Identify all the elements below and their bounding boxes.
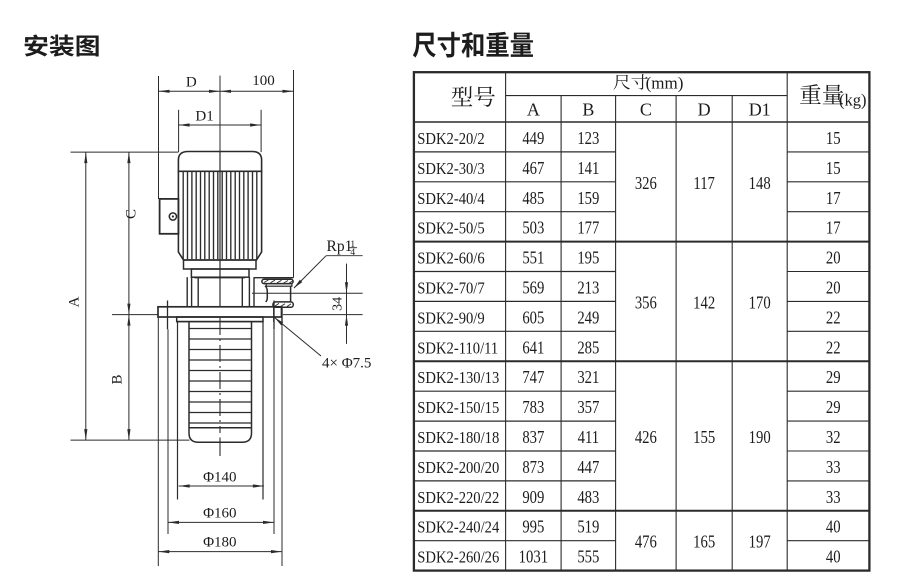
svg-text:519: 519 [577, 519, 599, 537]
svg-text:22: 22 [826, 309, 841, 327]
svg-text:A: A [67, 296, 83, 307]
svg-text:40: 40 [826, 549, 841, 567]
svg-text:Φ160: Φ160 [203, 506, 236, 522]
svg-text:503: 503 [522, 220, 544, 238]
svg-text:D: D [186, 75, 197, 91]
svg-text:SDK2-30/3: SDK2-30/3 [417, 160, 484, 178]
svg-text:SDK2-40/4: SDK2-40/4 [417, 190, 484, 208]
svg-text:197: 197 [749, 534, 771, 552]
svg-text:SDK2-110/11: SDK2-110/11 [417, 339, 498, 357]
svg-text:326: 326 [635, 175, 657, 193]
svg-text:551: 551 [522, 250, 544, 268]
svg-text:SDK2-220/22: SDK2-220/22 [417, 489, 499, 507]
svg-text:356: 356 [635, 294, 657, 312]
svg-text:SDK2-90/9: SDK2-90/9 [417, 309, 484, 327]
svg-text:783: 783 [522, 399, 544, 417]
svg-text:123: 123 [577, 130, 599, 148]
svg-text:195: 195 [577, 250, 599, 268]
svg-text:29: 29 [826, 399, 841, 417]
svg-text:569: 569 [522, 279, 544, 297]
svg-text:641: 641 [522, 339, 544, 357]
svg-text:17: 17 [826, 190, 841, 208]
svg-text:Φ140: Φ140 [203, 470, 236, 486]
svg-text:20: 20 [826, 279, 841, 297]
svg-text:32: 32 [826, 429, 841, 447]
svg-text:B: B [582, 100, 594, 120]
svg-text:483: 483 [577, 489, 599, 507]
svg-text:148: 148 [749, 175, 771, 193]
svg-text:34: 34 [331, 297, 346, 311]
svg-text:837: 837 [522, 429, 544, 447]
svg-text:C: C [640, 100, 652, 120]
svg-text:Φ180: Φ180 [203, 534, 236, 550]
svg-text:165: 165 [693, 534, 715, 552]
svg-text:Rp1: Rp1 [327, 238, 353, 255]
svg-text:SDK2-60/6: SDK2-60/6 [417, 250, 484, 268]
svg-text:D1: D1 [749, 100, 771, 120]
svg-text:A: A [527, 100, 540, 120]
svg-text:SDK2-180/18: SDK2-180/18 [417, 429, 499, 447]
svg-text:357: 357 [577, 399, 599, 417]
svg-text:SDK2-200/20: SDK2-200/20 [417, 459, 499, 477]
svg-text:555: 555 [577, 549, 599, 567]
svg-text:33: 33 [826, 489, 841, 507]
svg-text:141: 141 [577, 160, 599, 178]
svg-text:B: B [110, 374, 126, 384]
svg-text:449: 449 [522, 130, 544, 148]
svg-text:411: 411 [578, 429, 600, 447]
svg-text:(kg): (kg) [839, 91, 867, 110]
svg-text:1031: 1031 [519, 549, 548, 567]
svg-text:873: 873 [522, 459, 544, 477]
svg-text:177: 177 [577, 220, 599, 238]
svg-text:SDK2-20/2: SDK2-20/2 [417, 130, 484, 148]
svg-text:426: 426 [635, 429, 657, 447]
svg-text:29: 29 [826, 369, 841, 387]
svg-text:SDK2-70/7: SDK2-70/7 [417, 280, 484, 298]
svg-text:190: 190 [749, 429, 771, 447]
svg-text:155: 155 [693, 429, 715, 447]
svg-text:15: 15 [826, 160, 841, 178]
svg-text:4× Φ7.5: 4× Φ7.5 [322, 356, 371, 372]
svg-text:747: 747 [522, 369, 544, 387]
svg-text:249: 249 [577, 309, 599, 327]
svg-text:321: 321 [577, 369, 599, 387]
svg-text:C: C [124, 209, 140, 219]
svg-text:22: 22 [826, 339, 841, 357]
svg-text:SDK2-150/15: SDK2-150/15 [417, 399, 499, 417]
svg-text:467: 467 [522, 160, 544, 178]
svg-text:17: 17 [826, 220, 841, 238]
svg-text:20: 20 [826, 250, 841, 268]
svg-text:142: 142 [693, 294, 715, 312]
svg-text:40: 40 [826, 519, 841, 537]
svg-text:605: 605 [522, 309, 544, 327]
svg-text:15: 15 [826, 130, 841, 148]
svg-text:SDK2-260/26: SDK2-260/26 [417, 549, 499, 567]
svg-text:4: 4 [350, 248, 355, 258]
svg-text:213: 213 [577, 279, 599, 297]
svg-text:170: 170 [749, 294, 771, 312]
svg-text:SDK2-50/5: SDK2-50/5 [417, 220, 484, 238]
svg-text:447: 447 [577, 459, 599, 477]
svg-text:285: 285 [577, 339, 599, 357]
svg-text:159: 159 [577, 190, 599, 208]
svg-text:D: D [698, 100, 711, 120]
svg-text:SDK2-130/13: SDK2-130/13 [417, 369, 499, 387]
svg-text:909: 909 [522, 489, 544, 507]
svg-text:33: 33 [826, 459, 841, 477]
svg-text:995: 995 [522, 519, 544, 537]
svg-text:100: 100 [252, 73, 275, 89]
svg-text:476: 476 [635, 534, 657, 552]
svg-text:(mm): (mm) [646, 74, 684, 93]
svg-text:485: 485 [522, 190, 544, 208]
svg-text:SDK2-240/24: SDK2-240/24 [417, 519, 499, 537]
svg-text:D1: D1 [195, 109, 213, 125]
svg-text:117: 117 [693, 175, 715, 193]
